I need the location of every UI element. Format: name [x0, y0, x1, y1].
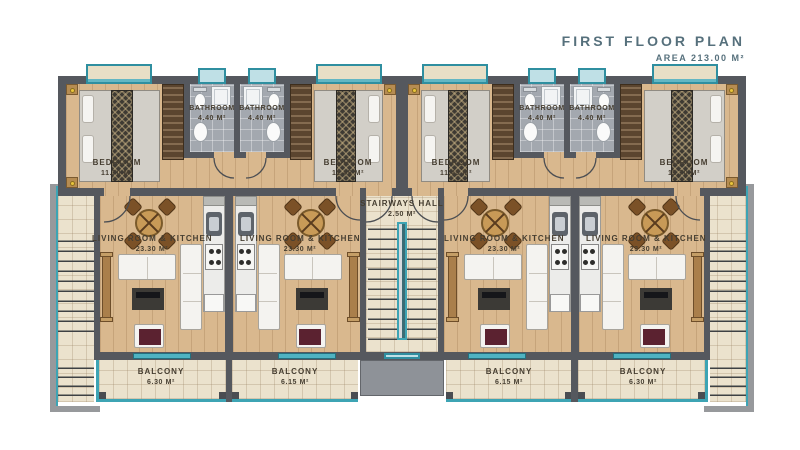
- bedroom-4-label: Bedroom 11.70 m²: [634, 158, 734, 179]
- room-name: Living Room & Kitchen: [444, 234, 565, 243]
- balcony-1-label: Balcony 6.30 m²: [101, 367, 221, 388]
- room-name: Bedroom: [324, 158, 373, 167]
- room-area: 4.40 m²: [232, 114, 292, 123]
- bathroom-4-label: Bathroom 4.40 m²: [562, 104, 622, 123]
- living-4-label: Living Room & Kitchen 23.30 m²: [586, 234, 706, 255]
- living-1-label: Living Room & Kitchen 23.30 m²: [92, 234, 212, 255]
- room-area: 23.30 m²: [586, 245, 706, 255]
- door-arc: [544, 158, 564, 178]
- room-area: 11.70 m²: [634, 169, 734, 179]
- room-name: Bathroom: [239, 105, 285, 112]
- floor-plan-page: Bedroom 11.70 m² Bathroom 4.40 m² Bathro…: [0, 0, 800, 450]
- balcony-4-label: Balcony 6.30 m²: [583, 367, 703, 388]
- room-name: Balcony: [620, 367, 667, 376]
- room-area: 6.30 m²: [101, 378, 221, 388]
- room-area: 23.30 m²: [92, 245, 212, 255]
- room-area: 23.30 m²: [444, 245, 564, 255]
- room-area: 11.45 m²: [406, 169, 506, 179]
- plan-total-area: Area 213.00 m²: [562, 53, 745, 63]
- room-area: 6.30 m²: [583, 378, 703, 388]
- room-name: Bathroom: [189, 105, 235, 112]
- room-area: 6.15 m²: [449, 378, 569, 388]
- door-arc: [246, 158, 266, 178]
- room-name: Balcony: [486, 367, 533, 376]
- room-name: Living Room & Kitchen: [92, 234, 213, 243]
- stairways-hall-label: Stairways Hall 2.50 m²: [352, 199, 452, 220]
- room-name: Living Room & Kitchen: [586, 234, 707, 243]
- room-name: Stairways Hall: [360, 199, 444, 208]
- balcony-3-label: Balcony 6.15 m²: [449, 367, 569, 388]
- room-name: Bedroom: [660, 158, 709, 167]
- page-title: First Floor Plan: [562, 33, 745, 49]
- room-name: Living Room & Kitchen: [240, 234, 361, 243]
- room-area: 6.15 m²: [235, 378, 355, 388]
- room-name: Bedroom: [93, 158, 142, 167]
- room-name: Bathroom: [569, 105, 615, 112]
- plan-title-block: First Floor Plan Area 213.00 m²: [562, 33, 745, 63]
- bedroom-2-label: Bedroom 11.45 m²: [298, 158, 398, 179]
- living-2-label: Living Room & Kitchen 23.30 m²: [240, 234, 360, 255]
- balcony-2-label: Balcony 6.15 m²: [235, 367, 355, 388]
- room-area: 2.50 m²: [352, 210, 452, 220]
- room-area: 11.45 m²: [298, 169, 398, 179]
- room-name: Balcony: [272, 367, 319, 376]
- door-arc: [104, 196, 130, 222]
- door-arc: [576, 158, 596, 178]
- room-area: 4.40 m²: [562, 114, 622, 123]
- living-3-label: Living Room & Kitchen 23.30 m²: [444, 234, 564, 255]
- room-name: Bathroom: [519, 105, 565, 112]
- room-area: 11.70 m²: [67, 169, 167, 179]
- room-name: Balcony: [138, 367, 185, 376]
- door-arc: [214, 158, 234, 178]
- room-name: Bedroom: [432, 158, 481, 167]
- bathroom-2-label: Bathroom 4.40 m²: [232, 104, 292, 123]
- door-arc: [676, 196, 700, 220]
- bedroom-3-label: Bedroom 11.45 m²: [406, 158, 506, 179]
- room-area: 23.30 m²: [240, 245, 360, 255]
- bedroom-1-label: Bedroom 11.70 m²: [67, 158, 167, 179]
